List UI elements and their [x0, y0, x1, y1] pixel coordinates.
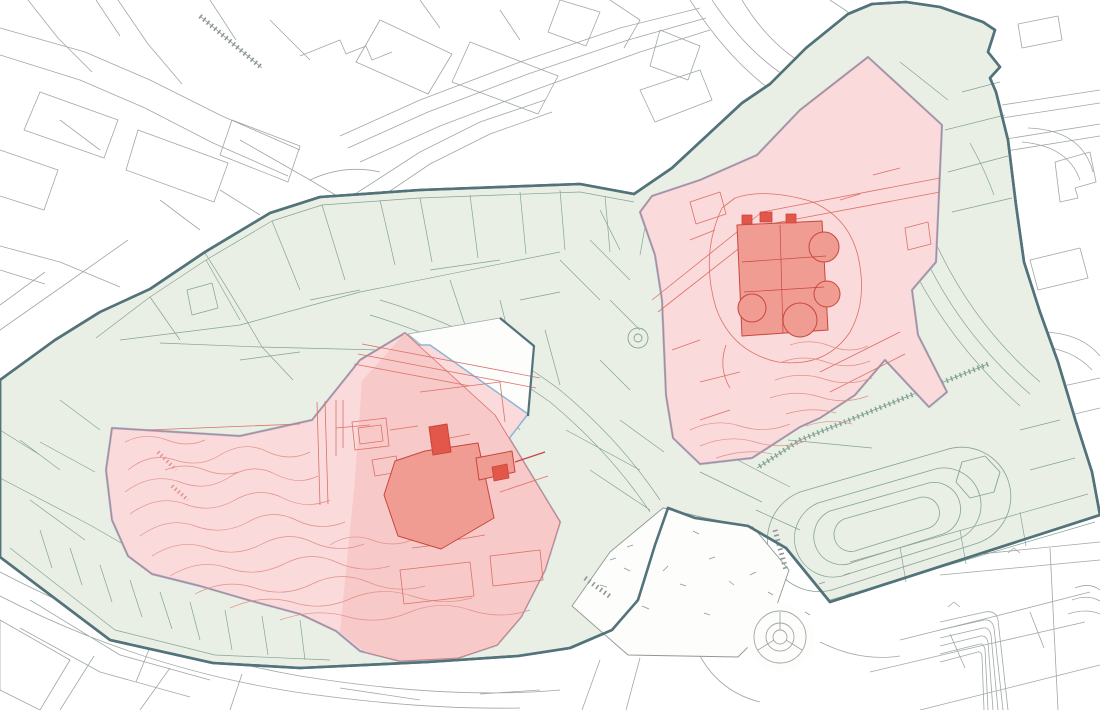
- castle-bastion-southwest: [738, 294, 766, 322]
- railway-line: [200, 16, 262, 68]
- palace-tower: [429, 424, 451, 455]
- heritage-zone-map: [0, 0, 1100, 710]
- castle-bastion-east: [814, 281, 840, 307]
- castle-bastion-northeast: [809, 232, 839, 262]
- terraced-building-lines: [940, 548, 1100, 710]
- cadastral-map-canvas: [0, 0, 1100, 710]
- palace-east-annex: [492, 464, 509, 481]
- castle-bastion-south: [783, 303, 817, 337]
